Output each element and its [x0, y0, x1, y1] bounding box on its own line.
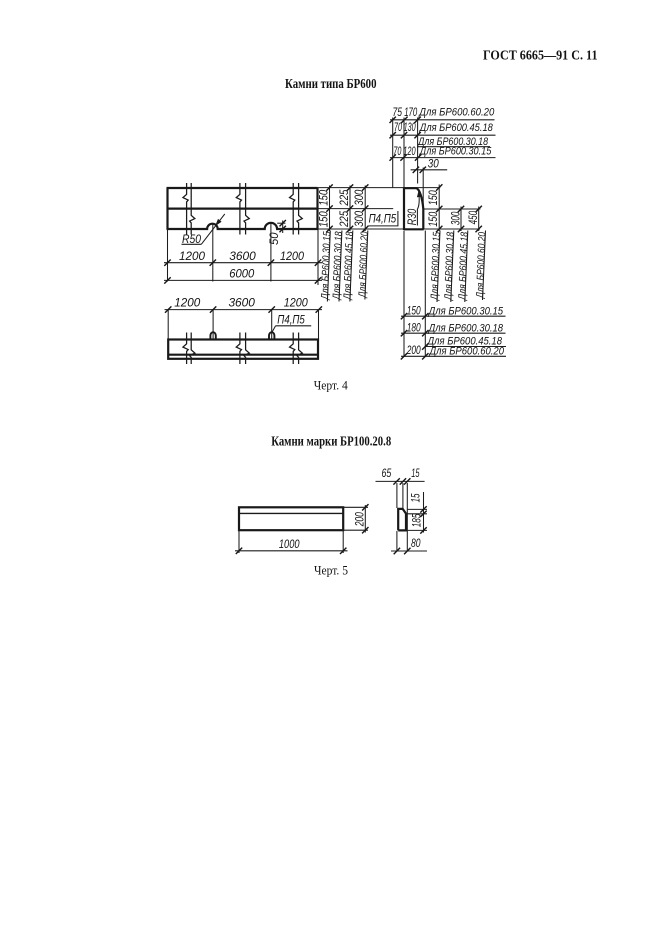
svg-text:180: 180 [407, 320, 421, 334]
svg-text:Камни марки БР100.20.8: Камни марки БР100.20.8 [271, 435, 391, 450]
svg-text:Для БР600.60.20: Для БР600.60.20 [357, 231, 370, 298]
svg-text:3600: 3600 [229, 249, 256, 263]
svg-text:1200: 1200 [280, 249, 304, 263]
svg-text:200: 200 [406, 343, 421, 357]
svg-text:ГОСТ 6665—91 С. 11: ГОСТ 6665—91 С. 11 [483, 49, 598, 64]
svg-text:75: 75 [393, 105, 403, 119]
svg-text:200: 200 [353, 512, 367, 527]
svg-text:450: 450 [466, 211, 480, 225]
svg-text:300: 300 [352, 189, 366, 205]
svg-text:150: 150 [426, 190, 440, 205]
svg-text:300: 300 [352, 211, 366, 227]
svg-text:П4,П5: П4,П5 [369, 212, 397, 226]
svg-text:R50: R50 [182, 232, 201, 246]
svg-text:80: 80 [411, 536, 421, 550]
svg-text:150: 150 [317, 211, 331, 227]
svg-text:П4,П5: П4,П5 [277, 313, 305, 327]
svg-text:Для БР600.60.20: Для БР600.60.20 [418, 107, 494, 119]
svg-text:150: 150 [426, 211, 440, 226]
svg-text:R30: R30 [405, 209, 419, 226]
svg-text:150: 150 [317, 190, 331, 206]
svg-text:50: 50 [267, 232, 281, 245]
svg-text:15: 15 [411, 466, 419, 480]
svg-text:Камни типа БР600: Камни типа БР600 [285, 77, 377, 92]
svg-text:225: 225 [337, 211, 351, 228]
svg-text:Черт. 5: Черт. 5 [314, 563, 348, 578]
svg-text:Для БР600.45.18: Для БР600.45.18 [419, 122, 493, 134]
svg-text:Для БР600.60.20: Для БР600.60.20 [475, 231, 488, 298]
svg-text:185: 185 [410, 514, 424, 528]
svg-text:130: 130 [404, 120, 416, 134]
svg-text:150: 150 [407, 303, 421, 317]
svg-text:1000: 1000 [279, 537, 300, 551]
svg-text:1200: 1200 [179, 249, 205, 263]
svg-text:30: 30 [428, 156, 439, 170]
svg-text:3600: 3600 [228, 296, 255, 310]
svg-text:Для БР600.60.20: Для БР600.60.20 [429, 345, 504, 357]
svg-text:170: 170 [404, 105, 417, 119]
svg-text:1200: 1200 [284, 296, 308, 310]
svg-text:Черт. 4: Черт. 4 [314, 378, 348, 393]
svg-text:6000: 6000 [229, 267, 254, 281]
svg-text:15: 15 [409, 493, 423, 502]
svg-text:300: 300 [448, 211, 462, 225]
svg-text:Для БР600.30.15: Для БР600.30.15 [428, 305, 503, 317]
svg-text:65: 65 [382, 466, 392, 480]
svg-text:1200: 1200 [174, 296, 200, 310]
svg-text:225: 225 [337, 189, 351, 206]
svg-text:Для БР600.30.18: Для БР600.30.18 [428, 322, 503, 334]
